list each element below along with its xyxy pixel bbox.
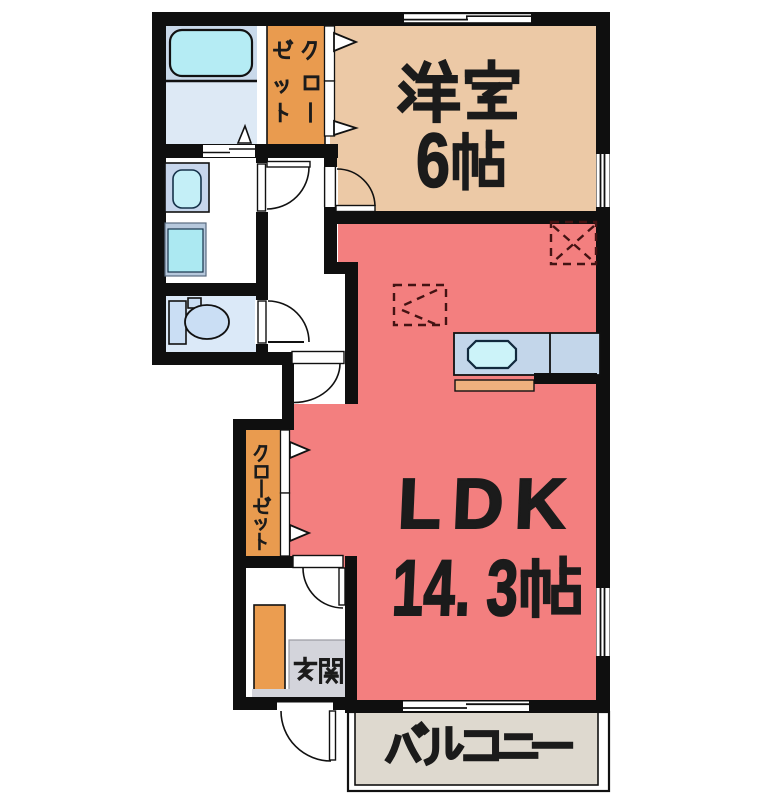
svg-text:14. 3: 14. 3 xyxy=(390,543,520,632)
svg-text:LDK: LDK xyxy=(396,465,567,544)
svg-text:6: 6 xyxy=(416,118,450,204)
